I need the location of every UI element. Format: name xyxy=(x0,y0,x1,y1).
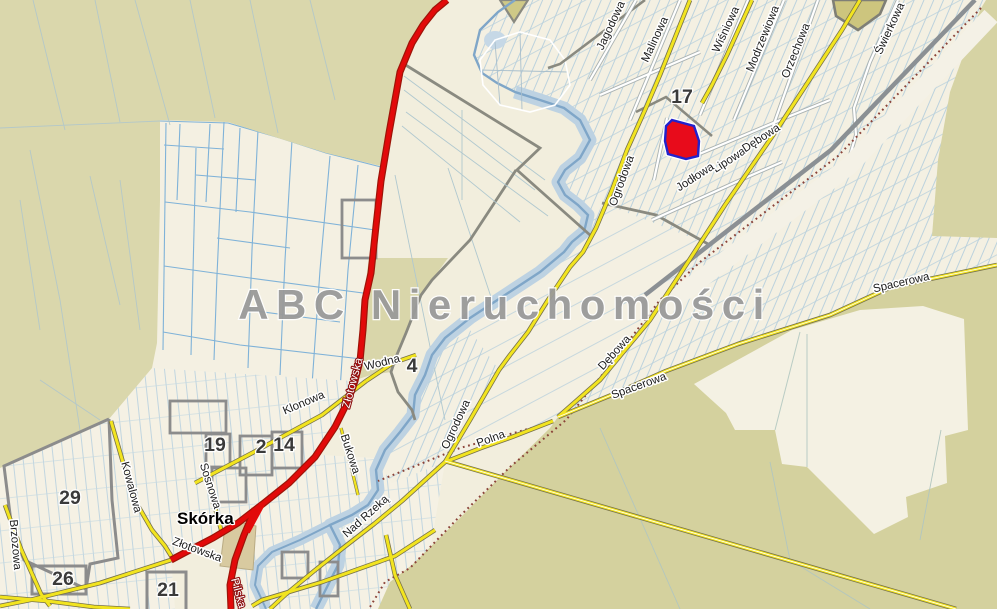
svg-text:Skórka: Skórka xyxy=(177,509,234,528)
svg-text:2: 2 xyxy=(256,436,267,458)
svg-text:17: 17 xyxy=(671,86,693,108)
svg-text:26: 26 xyxy=(52,568,74,590)
svg-text:ABC Nieruchomości: ABC Nieruchomości xyxy=(238,281,772,328)
svg-text:14: 14 xyxy=(273,434,295,456)
svg-text:19: 19 xyxy=(204,434,226,456)
svg-text:4: 4 xyxy=(407,355,418,377)
svg-text:21: 21 xyxy=(157,579,179,601)
svg-text:29: 29 xyxy=(59,487,81,509)
